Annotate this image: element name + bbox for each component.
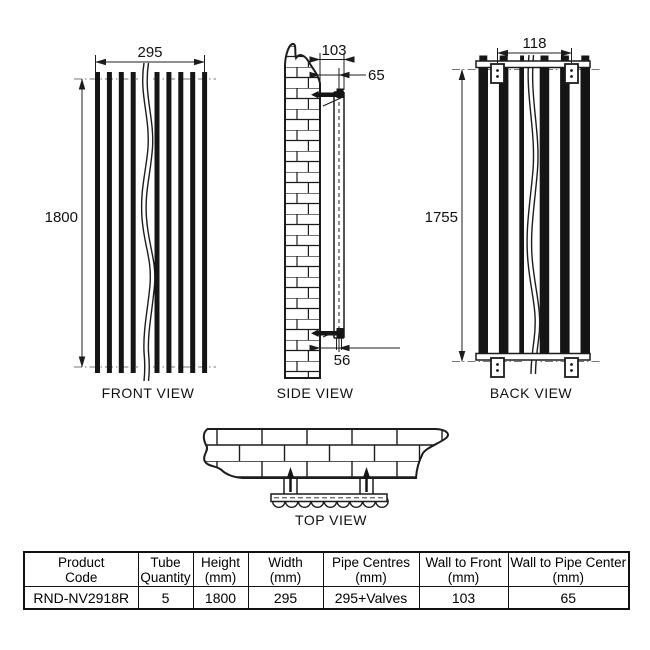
front-break-lines [138,62,155,383]
value-tube-quantity: 5 [138,587,193,610]
side-radiator-profile [334,92,344,350]
value-wall-to-front: 103 [419,587,508,610]
front-height-dim-text: 1800 [45,209,78,226]
side-wall-to-pipe-bottom-dim-text: 56 [334,352,351,369]
back-view: 118 1755 BACK VIEW [425,35,600,401]
header-wall-to-pipe-center: Wall to Pipe Center(mm) [508,552,629,587]
value-height: 1800 [193,587,248,610]
top-radiator-bar [271,494,387,502]
front-view-label: FRONT VIEW [102,385,195,401]
top-wall [204,429,448,478]
side-view-label: SIDE VIEW [277,385,354,401]
front-view: 295 1800 FRONT VIEW [45,44,216,401]
header-product-code: ProductCode [24,552,138,587]
side-wall-to-front-dim-text: 103 [321,42,346,59]
header-wall-to-front: Wall to Front(mm) [419,552,508,587]
value-pipe-centres: 295+Valves [323,587,419,610]
side-wall-to-pipe-bottom-dimension [311,337,400,352]
spec-table-data-row: RND-NV2918R 5 1800 295 295+Valves 103 65 [24,587,629,610]
drawing-canvas: 295 1800 FRONT VIEW [0,0,650,545]
front-width-dim-text: 295 [137,44,162,61]
back-bracket-height-dim-text: 1755 [425,209,458,226]
value-product-code: RND-NV2918R [24,587,138,610]
header-pipe-centres: Pipe Centres(mm) [323,552,419,587]
header-width: Width(mm) [248,552,323,587]
spec-table-header-row: ProductCode TubeQuantity Height(mm) Widt… [24,552,629,587]
top-wall-brackets [284,478,373,494]
spec-table: ProductCode TubeQuantity Height(mm) Widt… [23,551,630,610]
header-tube-quantity: TubeQuantity [138,552,193,587]
back-view-label: BACK VIEW [490,385,573,401]
radiator-technical-drawing: 295 1800 FRONT VIEW [0,0,650,650]
side-wall-to-pipe-top-dim-text: 65 [368,67,385,84]
value-wall-to-pipe-center: 65 [508,587,629,610]
header-height: Height(mm) [193,552,248,587]
back-break-lines [524,54,540,376]
back-bracket-centres-dim-text: 118 [523,35,547,52]
top-view-label: TOP VIEW [295,512,367,528]
value-width: 295 [248,587,323,610]
top-view: TOP VIEW [204,429,448,528]
side-view: 103 65 56 SIDE VIEW [277,42,400,401]
